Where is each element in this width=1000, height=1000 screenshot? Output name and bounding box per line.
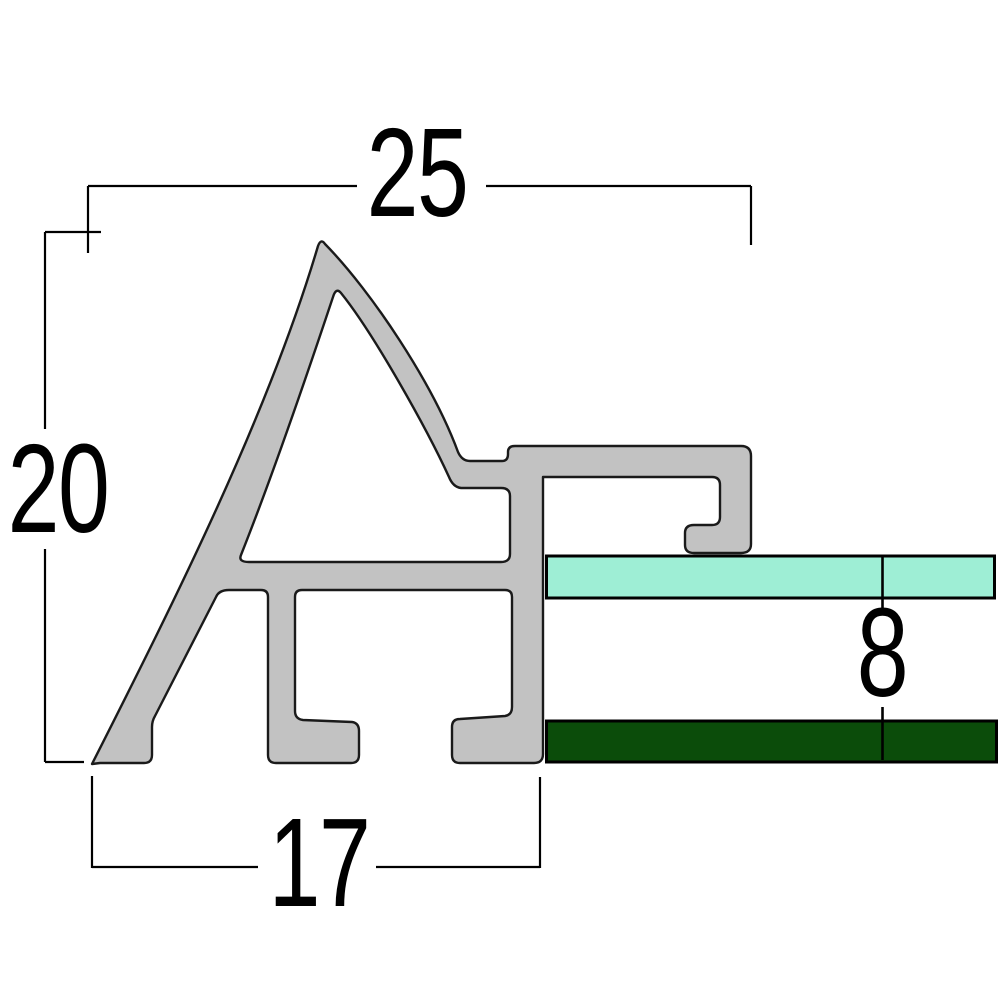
technical-drawing-canvas: 25 20 17 8 xyxy=(0,0,1000,1000)
dim-label-left-height: 20 xyxy=(8,426,109,552)
cross-section-diagram xyxy=(0,0,1000,1000)
dim-label-top-width: 25 xyxy=(367,110,468,236)
frame-profile-shape xyxy=(92,241,751,764)
dim-label-right-gap: 8 xyxy=(857,590,907,716)
back-board xyxy=(547,721,997,762)
dim-label-bottom-width: 17 xyxy=(269,800,370,926)
glass-panel xyxy=(547,556,995,598)
